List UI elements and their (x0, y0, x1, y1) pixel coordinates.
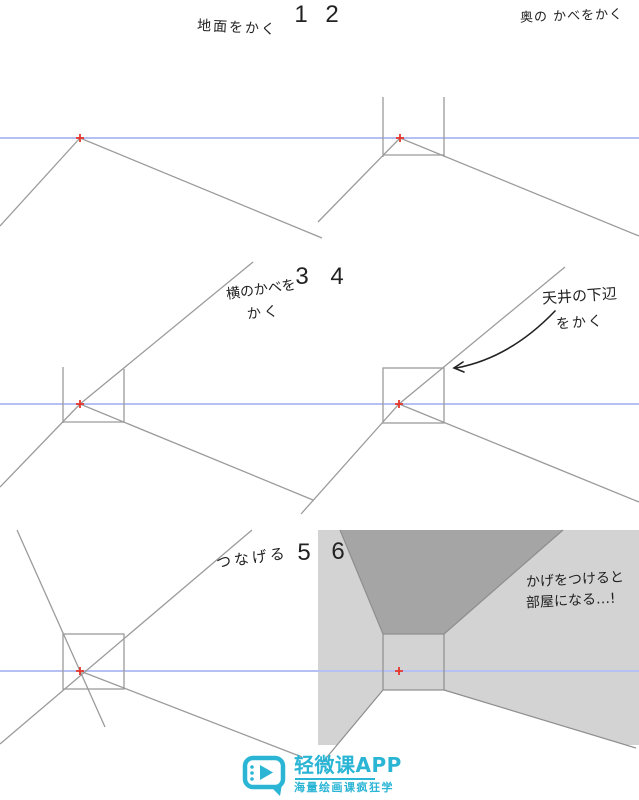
step4-ceiling-line (301, 267, 565, 514)
logo-dot-1 (250, 765, 254, 769)
tutorial-canvas: 1 2 3 4 5 6 地面をかく 奥の かべをかく 横のかべを かく 天井の下… (0, 0, 639, 800)
step1-number: 1 (294, 3, 307, 27)
perspective-tutorial-drawing (0, 0, 639, 800)
step5-diagonal-line (0, 530, 252, 744)
step4-number: 4 (330, 265, 343, 289)
watermark-divider (295, 778, 375, 780)
logo-dot-2 (250, 771, 254, 775)
step3-side-wall-line (0, 262, 253, 487)
watermark-tagline: 海量绘画课疯狂学 (294, 782, 402, 793)
step4-back-wall-square (383, 368, 444, 423)
step5-steep-line (17, 530, 105, 727)
step5-number: 5 (297, 541, 310, 565)
video-play-logo-icon (242, 755, 288, 797)
step4-ground-right-line (399, 404, 639, 502)
step4-pointer-arrow (456, 311, 555, 368)
step6-room-fills (318, 530, 639, 745)
app-watermark: 轻微课APP 海量绘画课疯狂学 (242, 755, 402, 797)
step5-ground-right-line (80, 671, 302, 757)
step1-ground-lines (0, 138, 322, 238)
watermark-text-block: 轻微课APP 海量绘画课疯狂学 (294, 755, 402, 793)
logo-speech-tail (270, 784, 282, 796)
step5-back-wall-square (63, 634, 124, 689)
step3-ground-right-line (80, 404, 313, 500)
step3-drawing (0, 262, 313, 500)
watermark-app-name: 轻微课APP (294, 755, 402, 775)
step2-ground-lines (318, 138, 639, 236)
step2-drawing (318, 97, 639, 236)
step2-number: 2 (325, 3, 338, 27)
step4-label-line2: をかく (555, 313, 604, 332)
step3-number: 3 (295, 265, 308, 289)
step6-number: 6 (331, 540, 344, 564)
logo-dot-3 (250, 777, 254, 781)
